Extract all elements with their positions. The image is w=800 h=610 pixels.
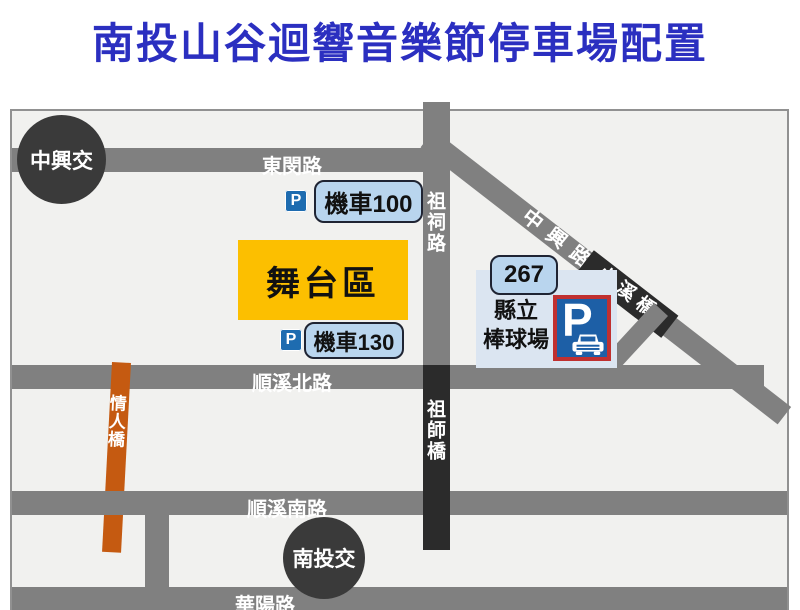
road-shunxi-south (12, 491, 787, 515)
road-label-qingren: 情人橋 (107, 394, 129, 449)
stage-area: 舞台區 (238, 240, 408, 320)
road-huayang (12, 587, 787, 610)
interchange-nantou: 南投交 (283, 517, 365, 599)
bridge-qingren: 情人橋 (102, 362, 131, 553)
stadium-label: 縣立 棒球場 (474, 297, 558, 355)
screenshot-root: { "title": "南投山谷迴響音樂節停車場配置", "colors": {… (0, 0, 800, 610)
map-canvas: 東閔路 祖祠路 中興路 小溪橋 順溪北路 祖師橋 情人橋 順溪南路 華陽路 (10, 109, 789, 610)
road-label-dongmin: 東閔路 (242, 150, 342, 179)
stadium-label-line2: 棒球場 (474, 326, 558, 355)
road-label-zuci: 祖祠路 (425, 191, 448, 254)
page-title: 南投山谷迴響音樂節停車場配置 (0, 10, 800, 71)
parking-sign: P (553, 295, 611, 361)
road-label-huayang: 華陽路 (220, 589, 310, 610)
interchange-zhongxing: 中興交 (17, 115, 106, 204)
label-moto130: 機車130 (304, 322, 404, 359)
car-icon (570, 331, 606, 356)
parking-p-icon-bottom: P (280, 329, 302, 351)
parking-p-icon-top: P (285, 190, 307, 212)
label-moto100: 機車100 (314, 180, 423, 223)
label-route267: 267 (490, 255, 558, 295)
road-label-zushi: 祖師橋 (425, 399, 448, 462)
stadium-label-line1: 縣立 (474, 297, 558, 326)
road-label-shunxi-north: 順溪北路 (237, 367, 347, 396)
